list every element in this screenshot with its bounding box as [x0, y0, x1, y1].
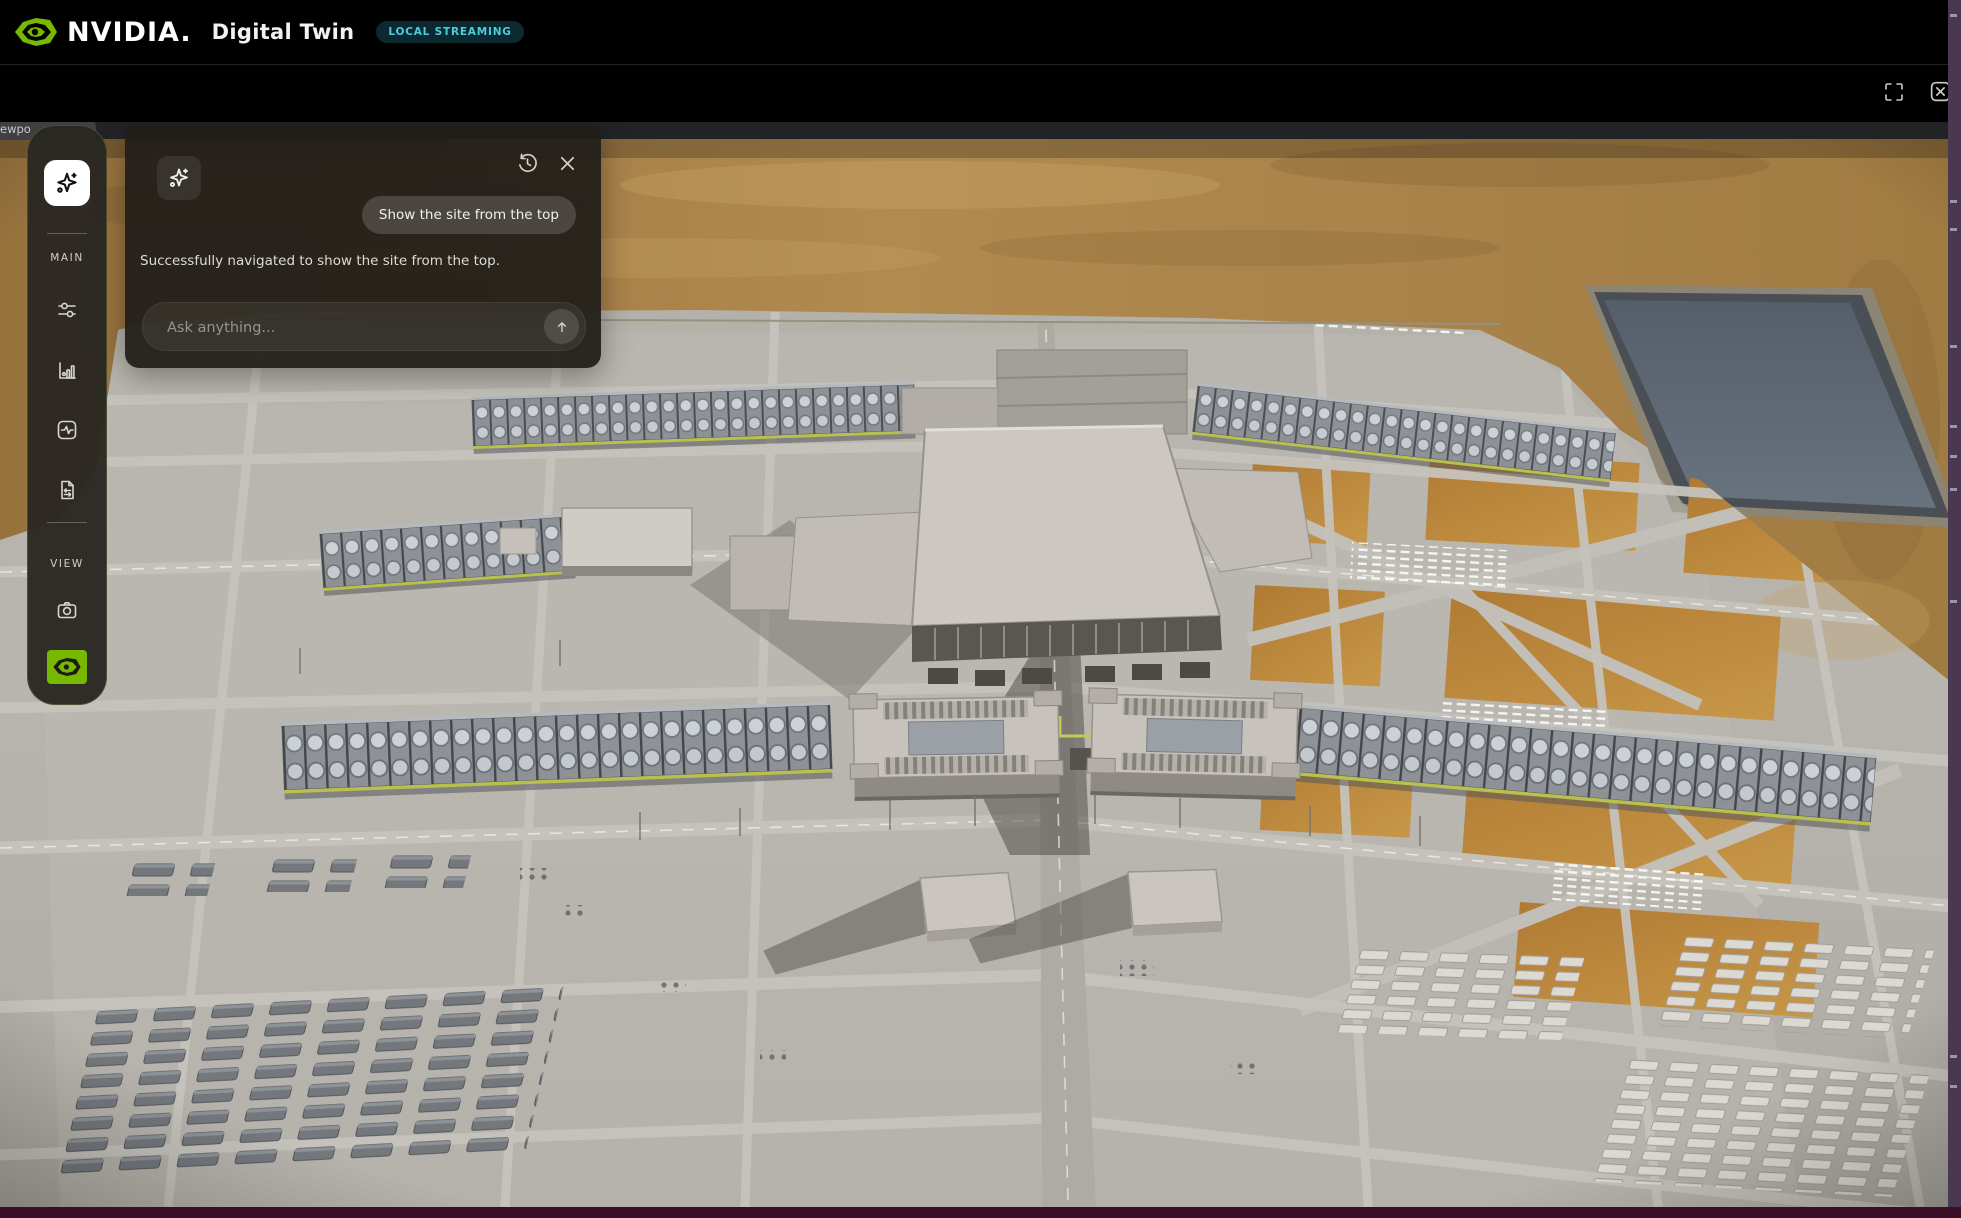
viewport-tab-label: ewpo: [0, 122, 31, 136]
sidebar-item-monitoring[interactable]: [55, 418, 79, 442]
chat-input-container: [142, 302, 586, 351]
sliders-icon: [55, 298, 79, 322]
local-streaming-badge: LOCAL STREAMING: [376, 21, 523, 43]
sidebar-item-screenshot[interactable]: [55, 598, 79, 622]
bar-chart-icon: [55, 358, 79, 382]
nvidia-logo-icon: [14, 15, 58, 49]
chat-input[interactable]: [165, 303, 499, 352]
sidebar-item-analytics[interactable]: [55, 358, 79, 382]
ai-sparkle-icon: [54, 170, 80, 196]
nvidia-eye-icon: [52, 656, 82, 678]
document-settings-icon: [55, 478, 79, 502]
sidebar-item-nvidia[interactable]: [47, 650, 87, 684]
ai-chat-panel: Show the site from the top Successfully …: [125, 125, 601, 368]
sidebar-section-view: VIEW: [28, 558, 106, 570]
send-button[interactable]: [544, 309, 579, 344]
toolbar-row: [0, 65, 1961, 122]
bottom-edge-strip: [0, 1207, 1961, 1218]
sidebar: MAIN: [27, 125, 107, 705]
history-icon[interactable]: [516, 152, 539, 175]
app-title: Digital Twin: [212, 20, 355, 44]
ai-assistant-button[interactable]: [44, 160, 90, 206]
close-icon[interactable]: [556, 152, 579, 175]
adjacent-window-strip: [1948, 0, 1961, 1218]
brand-wordmark: NVIDIA.: [67, 17, 192, 48]
pulse-icon: [55, 418, 79, 442]
sidebar-section-main: MAIN: [28, 252, 106, 264]
camera-icon: [55, 598, 79, 622]
app-window: ewpo NVIDIA. Digital Twin LOCAL STREAMIN…: [0, 0, 1961, 1218]
user-message-bubble: Show the site from the top: [362, 196, 576, 234]
sidebar-item-controls[interactable]: [55, 298, 79, 322]
sidebar-divider: [47, 233, 87, 234]
header-bar: NVIDIA. Digital Twin LOCAL STREAMING: [0, 0, 1961, 65]
sidebar-divider: [47, 522, 87, 523]
chat-ai-badge: [157, 156, 201, 200]
sidebar-item-reports[interactable]: [55, 478, 79, 502]
fullscreen-icon[interactable]: [1882, 80, 1906, 104]
assistant-message: Successfully navigated to show the site …: [140, 253, 500, 269]
send-arrow-icon: [553, 318, 571, 336]
ai-sparkle-icon: [167, 166, 191, 190]
